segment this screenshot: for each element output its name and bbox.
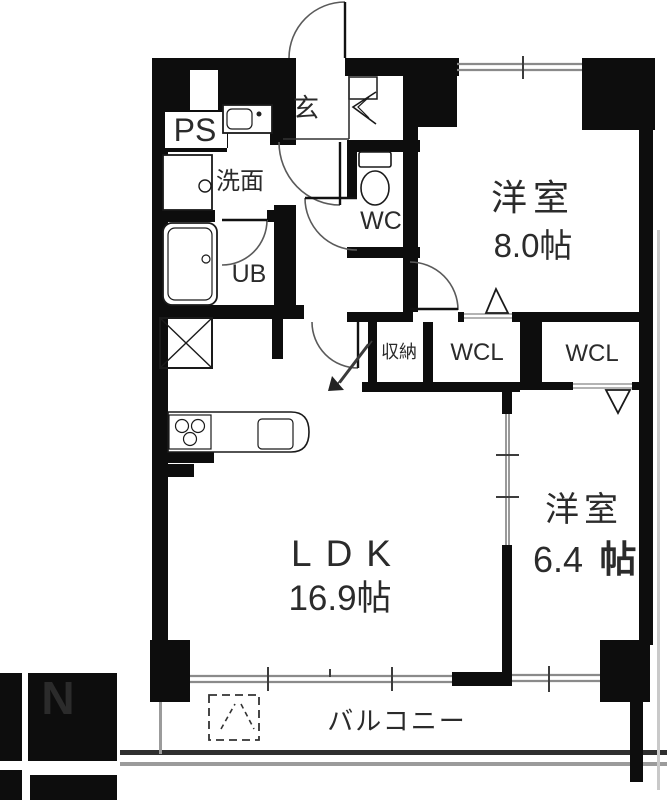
north-label: N [41, 672, 74, 724]
western8-size: 8.0帖 [494, 227, 573, 264]
western6-name: 洋室 [545, 491, 623, 529]
kitchen-counter [168, 412, 309, 452]
bathtub [163, 223, 217, 305]
wcl1-label: WCL [450, 339, 503, 366]
kitchen-sink [258, 419, 293, 449]
ldk-name: LDK [291, 533, 405, 574]
storage-label: 収納 [381, 342, 417, 362]
pipe-space-label: PS [174, 112, 217, 148]
north-indicator: N [0, 672, 117, 800]
wcl2-label: WCL [565, 340, 618, 367]
ldk-size: 16.9帖 [288, 579, 391, 618]
washing-machine [163, 155, 212, 210]
vanity-sink [223, 105, 272, 133]
western8-name: 洋室 [491, 177, 575, 218]
western6-size-unit: 帖 [600, 539, 637, 580]
western6-size-number: 6.4 [533, 539, 583, 580]
floorplan-page: N PS 玄 洗面 WC UB 収納 WCL WCL 洋室 8.0帖 洋室 6.… [0, 0, 667, 800]
balcony-label: バルコニー [327, 706, 466, 736]
entrance-label: 玄 [293, 93, 319, 123]
floorplan-svg: N PS 玄 洗面 WC UB 収納 WCL WCL 洋室 8.0帖 洋室 6.… [0, 0, 667, 800]
washroom-label: 洗面 [216, 168, 264, 195]
toilet [359, 152, 391, 205]
toilet-label: WC [360, 207, 402, 235]
bath-label: UB [232, 260, 267, 288]
